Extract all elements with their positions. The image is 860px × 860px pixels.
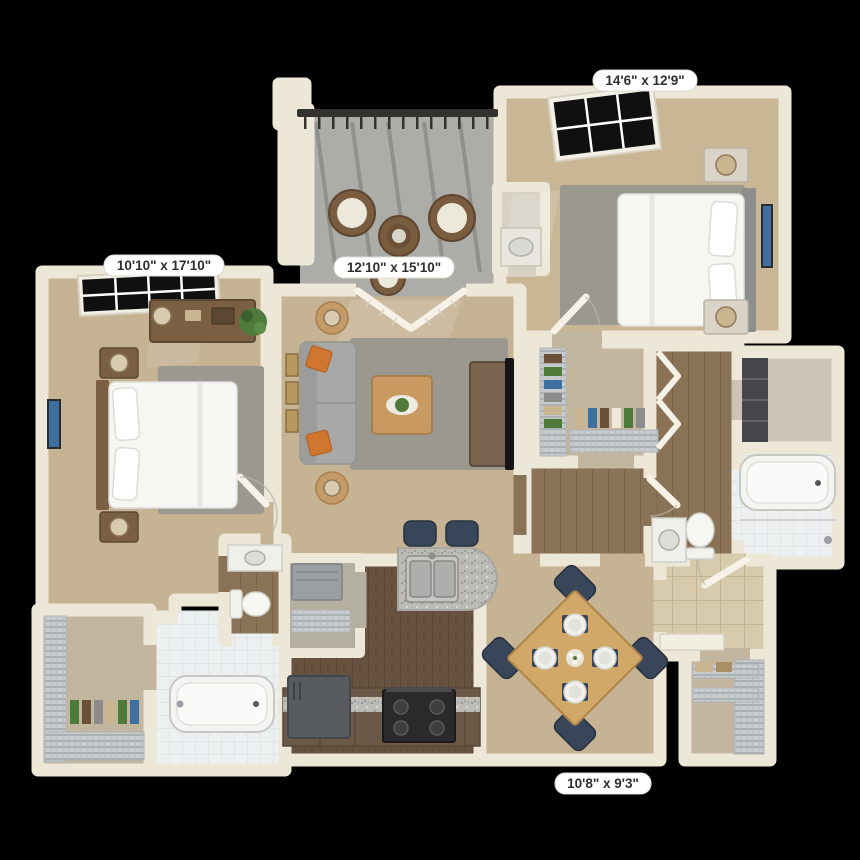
- vanity-sink: [228, 545, 282, 571]
- bedroom-right-window-icon: [548, 85, 661, 161]
- toilet-icon: [230, 590, 270, 618]
- wall-frames: [286, 354, 298, 432]
- sink-icon: [245, 551, 265, 565]
- floor-plan-3d-render: 14'6" x 12'9" 10'10" x 17'10" 12'10" x 1…: [0, 0, 860, 860]
- lamp-icon: [324, 310, 340, 326]
- double-sink-icon: [406, 553, 458, 603]
- label-bedroom-left: 10'10" x 17'10": [104, 255, 224, 276]
- faucet-icon: [429, 553, 436, 560]
- centerpiece-icon: [566, 649, 584, 667]
- sink-icon: [509, 238, 533, 256]
- pillow: [112, 387, 140, 441]
- wire-shelf: [570, 430, 658, 452]
- entry-console: [660, 634, 724, 650]
- bed-left: [96, 380, 237, 510]
- storage-box: [695, 662, 713, 672]
- wire-shelf: [692, 688, 758, 702]
- bar-stool: [446, 521, 478, 546]
- drain-icon: [253, 701, 259, 707]
- living-room-dimensions: 12'10" x 15'10": [347, 260, 441, 275]
- lamp-icon: [716, 155, 736, 175]
- storage-box: [716, 662, 732, 672]
- end-table-top: [316, 302, 348, 334]
- pillow: [112, 447, 140, 501]
- sink-icon: [659, 530, 679, 550]
- potted-plant-icon: [239, 308, 267, 336]
- nightstand-bottom: [100, 512, 138, 542]
- lamp-icon: [110, 518, 128, 536]
- wire-shelf: [292, 610, 350, 632]
- tv-console: [470, 358, 514, 470]
- hallway-floor: [525, 462, 650, 560]
- tv-icon: [505, 358, 514, 470]
- utility-closet: [292, 564, 350, 632]
- nightstand-top: [704, 148, 748, 182]
- bedroom-right-dimensions: 14'6" x 12'9": [605, 73, 684, 88]
- label-bedroom-right: 14'6" x 12'9": [593, 70, 697, 91]
- refrigerator-icon: [288, 676, 350, 738]
- accent-pillow: [306, 430, 333, 457]
- plant-icon: [395, 398, 409, 412]
- coffee-table: [372, 376, 432, 434]
- lamp-icon: [324, 480, 340, 496]
- bar-stool: [404, 521, 436, 546]
- showerhead-icon: [824, 536, 832, 544]
- wire-shelf: [44, 732, 144, 760]
- patio-chair: [329, 190, 375, 236]
- dining-area-dimensions: 10'8" x 9'3": [567, 776, 639, 791]
- lamp-icon: [716, 307, 736, 327]
- label-dining-area: 10'8" x 9'3": [555, 773, 651, 794]
- bathroom-right-vanity-nook: [501, 228, 541, 266]
- vanity-sink: [652, 518, 686, 562]
- pillow: [708, 201, 738, 257]
- wall-art-icon: [762, 205, 772, 267]
- nightstand-bottom: [704, 300, 748, 334]
- label-living-room: 12'10" x 15'10": [334, 257, 454, 278]
- drain-icon: [815, 480, 821, 486]
- wall-art-icon: [48, 400, 60, 448]
- lamp-icon: [153, 307, 171, 325]
- nightstand-top: [100, 348, 138, 378]
- balcony-wall-column: [284, 109, 308, 259]
- lamp-icon: [110, 354, 128, 372]
- counter-peninsula: [398, 548, 497, 610]
- tub-room-left: [170, 676, 274, 732]
- patio-chair: [429, 195, 475, 241]
- water-heater-icon: [292, 564, 342, 600]
- end-table-bottom: [316, 472, 348, 504]
- range-icon: [383, 687, 455, 742]
- sofa: [300, 342, 356, 464]
- linen-closet: [742, 358, 768, 442]
- balcony-railing: [297, 109, 498, 117]
- toilet-icon: [686, 513, 714, 559]
- headboard: [96, 380, 109, 510]
- bedroom-left-dimensions: 10'10" x 17'10": [117, 258, 211, 273]
- patio-table: [379, 216, 419, 256]
- faucet-icon: [177, 701, 184, 708]
